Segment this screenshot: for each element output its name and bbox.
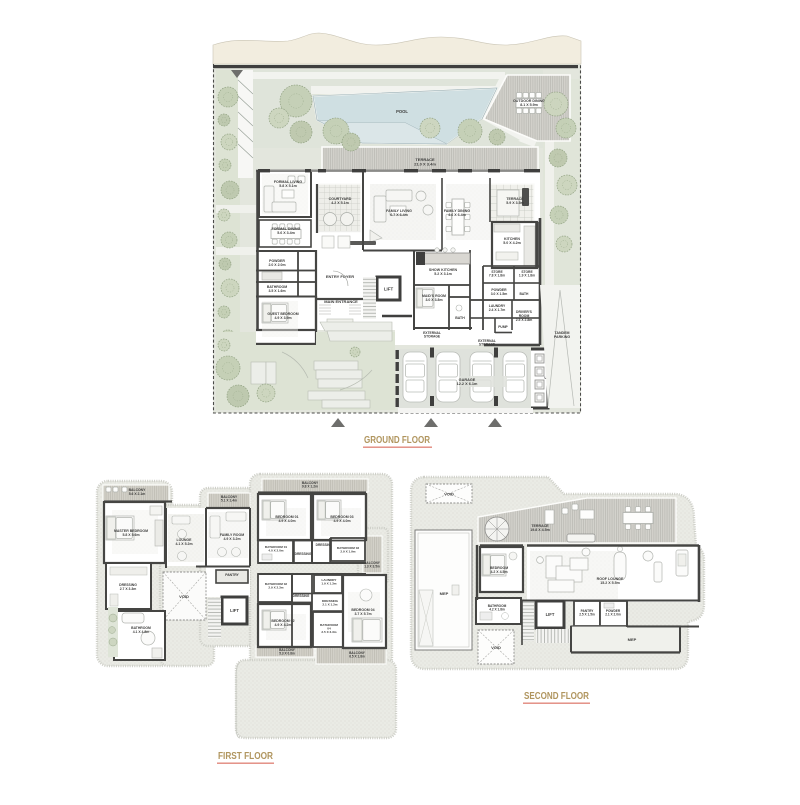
svg-text:1.9 X 1.3m: 1.9 X 1.3m — [321, 582, 336, 586]
svg-text:12.2 X 6.1m: 12.2 X 6.1m — [457, 382, 478, 386]
svg-text:4.9 X 4.0m: 4.9 X 4.0m — [333, 519, 350, 523]
svg-text:7.8 X 1.8m: 7.8 X 1.8m — [489, 274, 505, 278]
svg-text:2.5 X 3.3m: 2.5 X 3.3m — [321, 630, 336, 634]
svg-text:2.1 X 2.0m: 2.1 X 2.0m — [605, 613, 621, 617]
svg-text:9.8 X 1.2m: 9.8 X 1.2m — [302, 485, 318, 489]
svg-text:PARKING: PARKING — [554, 335, 571, 339]
svg-text:4.1 X 5.2m: 4.1 X 5.2m — [175, 542, 192, 546]
svg-text:5.8 X 5.1m: 5.8 X 5.1m — [279, 184, 297, 188]
svg-text:2.5 X 2.8m: 2.5 X 2.8m — [516, 318, 533, 322]
svg-text:6.5 X 1.8m: 6.5 X 1.8m — [349, 655, 365, 659]
svg-text:3.0 X 1.5m: 3.0 X 1.5m — [491, 292, 508, 296]
svg-text:6.7 X 6.4m: 6.7 X 6.4m — [390, 213, 408, 217]
svg-text:5.8 X 5.6m: 5.8 X 5.6m — [122, 533, 139, 537]
svg-text:STORAGE: STORAGE — [479, 343, 496, 347]
svg-text:2.7 X 3.3m: 2.7 X 3.3m — [120, 587, 137, 591]
svg-text:4.9 X 3.9m: 4.9 X 3.9m — [274, 316, 291, 320]
svg-text:SECOND FLOOR: SECOND FLOOR — [524, 691, 590, 702]
svg-text:1.9 X 1.8m: 1.9 X 1.8m — [519, 274, 535, 278]
svg-text:2.9 X 1.9m: 2.9 X 1.9m — [340, 550, 355, 554]
svg-text:4.9 X 4.0m: 4.9 X 4.0m — [278, 519, 295, 523]
svg-text:LIFT: LIFT — [230, 608, 239, 613]
svg-text:2.9 X 2.3m: 2.9 X 2.3m — [268, 586, 283, 590]
svg-text:2.4 X 1.7m: 2.4 X 1.7m — [489, 308, 506, 312]
svg-text:8.1 X 5.9m: 8.1 X 5.9m — [520, 103, 538, 107]
svg-text:4.2 X 1.8m: 4.2 X 1.8m — [489, 608, 505, 612]
svg-text:LIFT: LIFT — [384, 287, 394, 292]
svg-text:BATH: BATH — [455, 316, 465, 320]
svg-text:5.0 X 4.2m: 5.0 X 4.2m — [503, 241, 521, 245]
svg-text:4.2 X 4.5m: 4.2 X 4.5m — [490, 570, 507, 574]
svg-text:2.1 X 1.2m: 2.1 X 1.2m — [322, 603, 337, 607]
svg-text:VOID: VOID — [179, 594, 189, 599]
svg-text:POOL: POOL — [396, 109, 408, 114]
svg-text:MAIN ENTRANCE: MAIN ENTRANCE — [324, 299, 358, 304]
svg-text:VOID: VOID — [444, 492, 454, 497]
svg-text:2.5 X 1.5m: 2.5 X 1.5m — [579, 613, 595, 617]
svg-text:STORAGE: STORAGE — [424, 335, 441, 339]
svg-text:ENTRY FOYER: ENTRY FOYER — [326, 274, 354, 279]
svg-text:5.1 X 1.4m: 5.1 X 1.4m — [221, 499, 237, 503]
svg-text:5.3 X 0.8m: 5.3 X 0.8m — [279, 652, 295, 656]
svg-text:1.3 X 3.5m: 1.3 X 3.5m — [364, 565, 380, 569]
svg-text:DRESSING: DRESSING — [295, 552, 312, 556]
svg-text:3.7 X 5.7m: 3.7 X 5.7m — [354, 612, 371, 616]
svg-text:PANTRY: PANTRY — [225, 573, 239, 577]
svg-text:4.1 X 4.8m: 4.1 X 4.8m — [133, 630, 150, 634]
svg-text:4.2 X 5.1m: 4.2 X 5.1m — [331, 201, 349, 205]
svg-text:5.2 X 3.1m: 5.2 X 3.1m — [434, 272, 452, 276]
svg-text:5.6 X 3.4m: 5.6 X 3.4m — [277, 231, 295, 235]
svg-text:VOID: VOID — [491, 645, 501, 650]
svg-text:5.6 X 2.1m: 5.6 X 2.1m — [129, 492, 146, 496]
svg-text:4.0 X 2.0m: 4.0 X 2.0m — [268, 549, 283, 553]
svg-text:15.2 X 5.5m: 15.2 X 5.5m — [600, 581, 620, 585]
svg-text:21.0 X 3.4m: 21.0 X 3.4m — [414, 161, 436, 166]
svg-text:PUMP: PUMP — [498, 325, 508, 329]
svg-text:3.0 X 3.8m: 3.0 X 3.8m — [425, 298, 442, 302]
svg-text:4.6 X 6.4m: 4.6 X 6.4m — [448, 213, 466, 217]
svg-text:LIFT: LIFT — [546, 612, 555, 617]
svg-text:MEP: MEP — [628, 637, 637, 642]
svg-text:FIRST FLOOR: FIRST FLOOR — [218, 751, 274, 762]
svg-text:4.9 X 4.2m: 4.9 X 4.2m — [274, 623, 291, 627]
svg-text:DRESSING: DRESSING — [293, 594, 310, 598]
svg-text:3.5 X 1.6m: 3.5 X 1.6m — [268, 289, 285, 293]
svg-text:19.8 X 4.5m: 19.8 X 4.5m — [530, 528, 550, 532]
svg-text:4.9 X 3.2m: 4.9 X 3.2m — [223, 537, 240, 541]
svg-text:MEP: MEP — [440, 591, 449, 596]
svg-text:5.9 X 3.5m: 5.9 X 3.5m — [506, 201, 524, 205]
svg-text:BATH: BATH — [520, 292, 530, 296]
svg-text:2.0 X 2.0m: 2.0 X 2.0m — [268, 263, 285, 267]
svg-text:GROUND FLOOR: GROUND FLOOR — [364, 435, 431, 446]
